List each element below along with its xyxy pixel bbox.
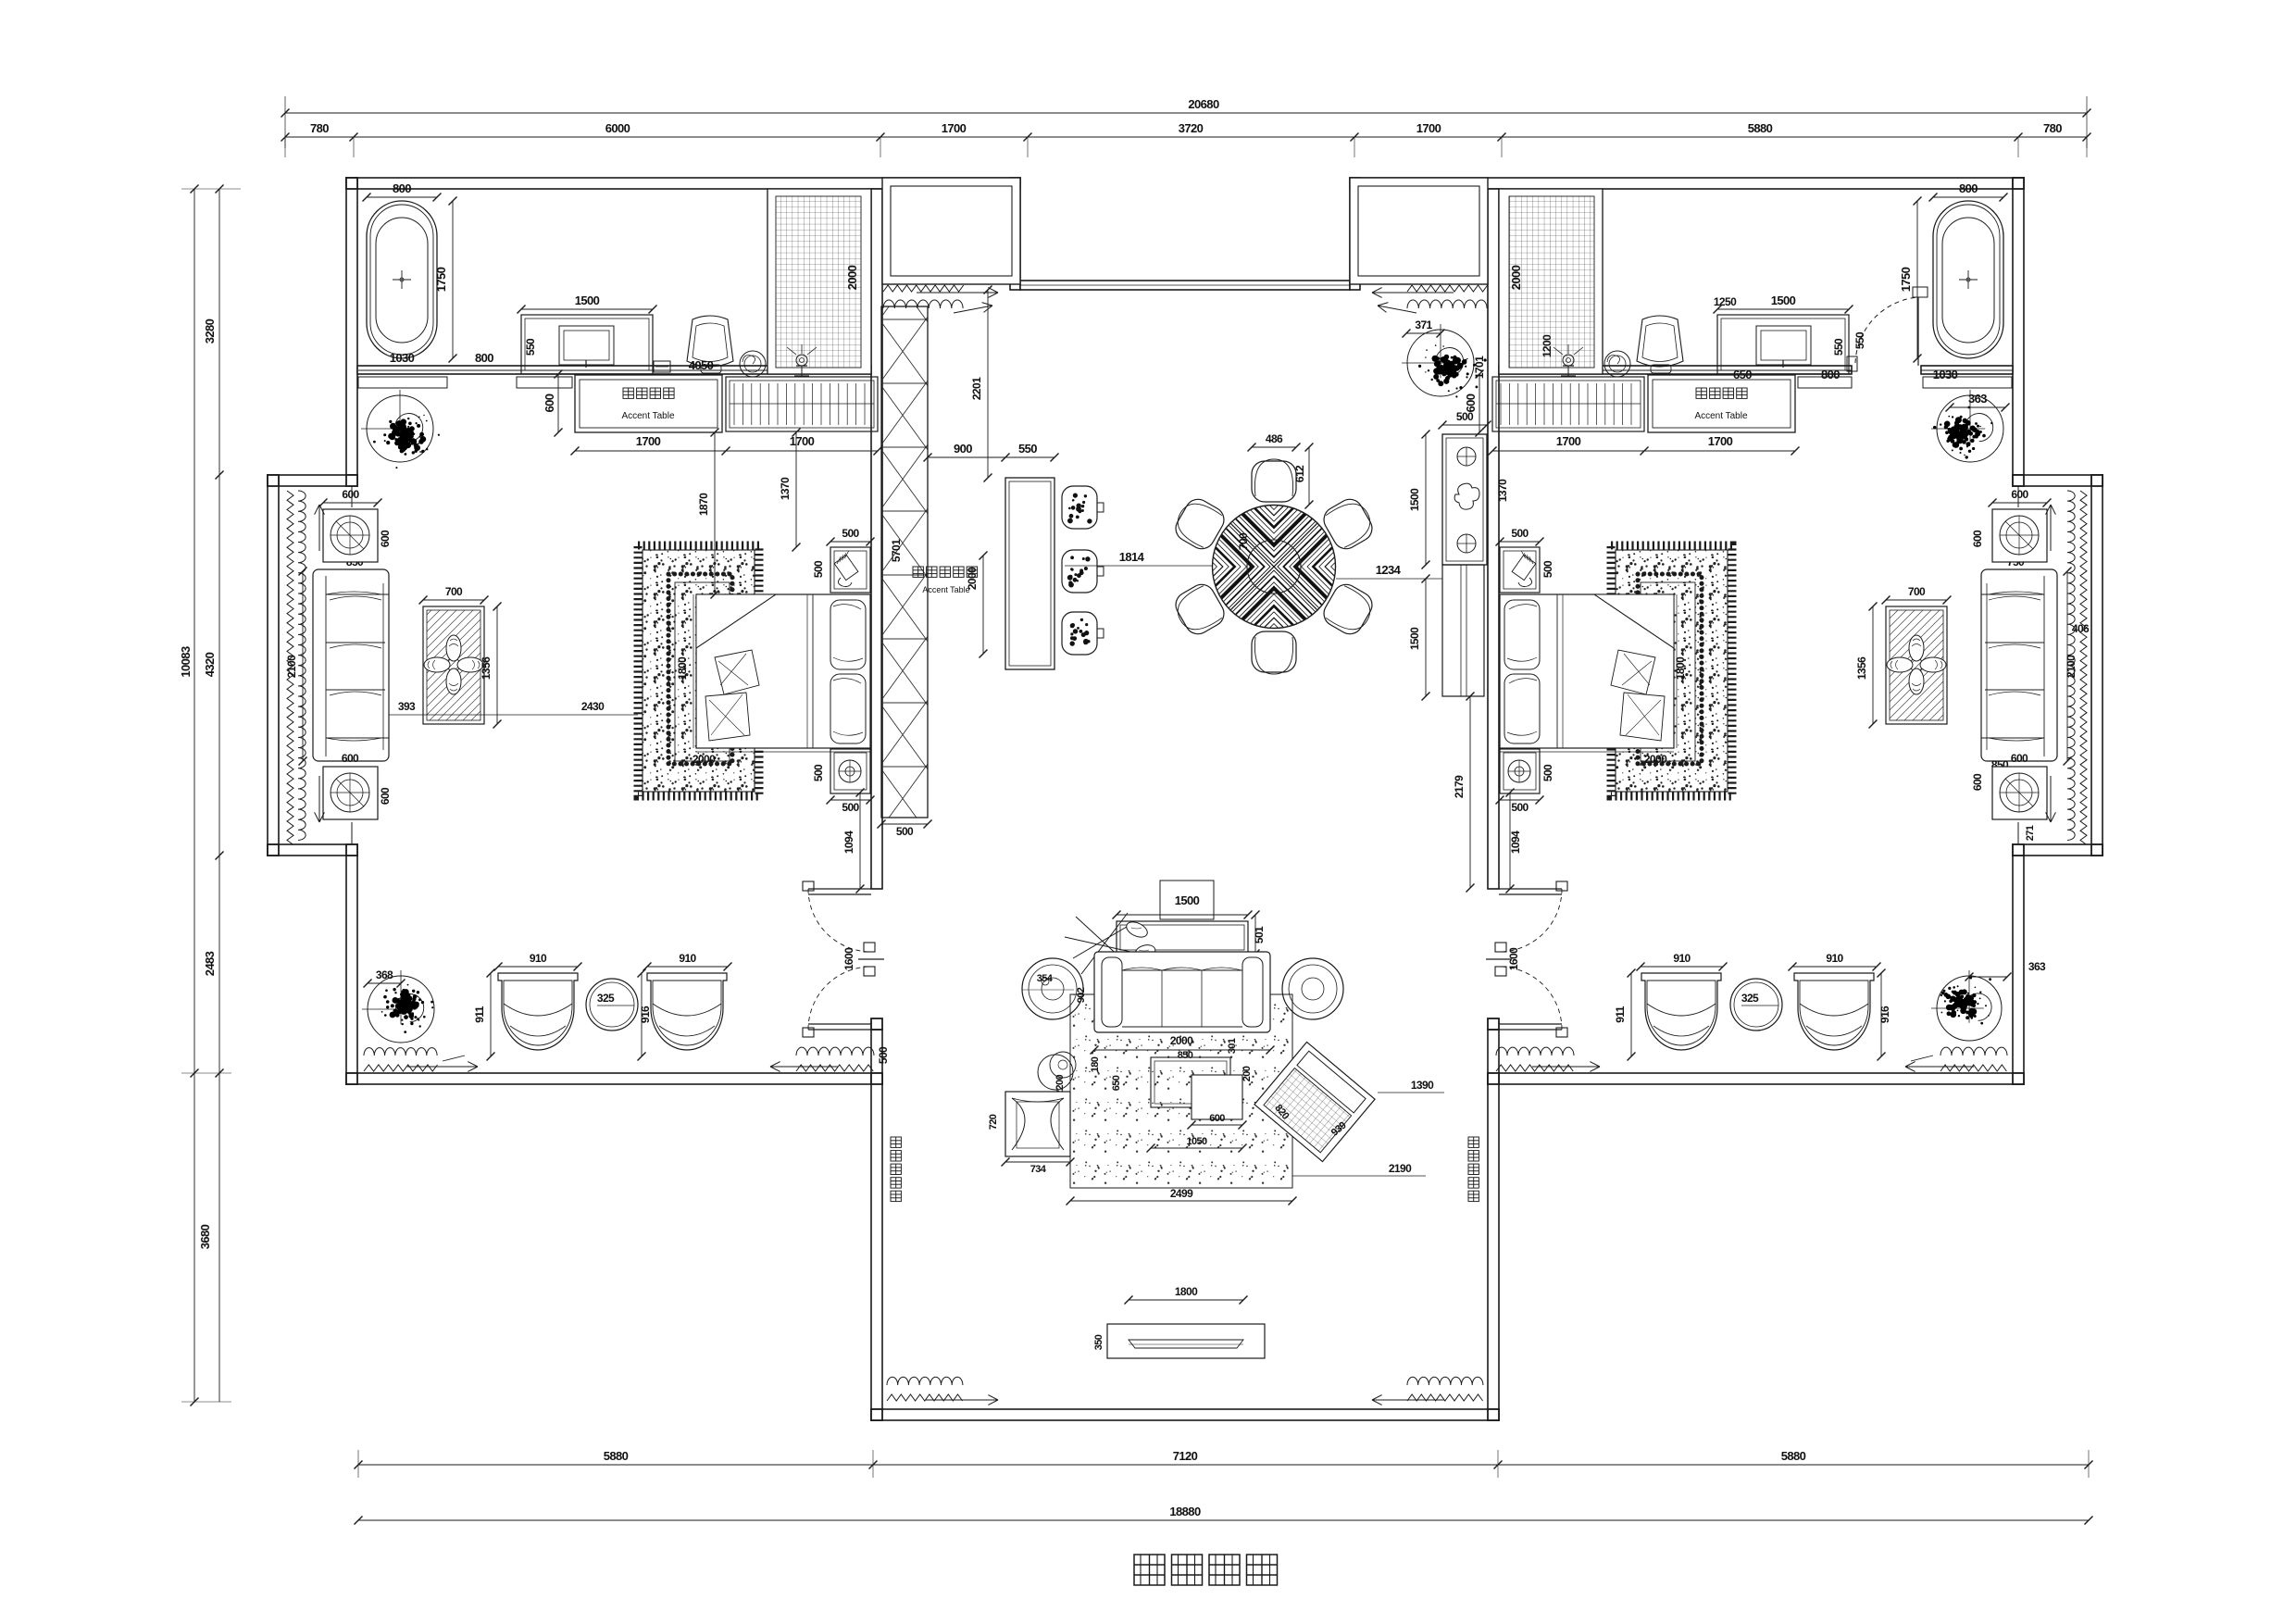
svg-text:1700: 1700 — [1416, 121, 1441, 135]
svg-text:1750: 1750 — [1899, 267, 1913, 292]
svg-text:1700: 1700 — [942, 121, 967, 135]
svg-text:2000: 2000 — [1170, 1034, 1193, 1047]
svg-text:2499: 2499 — [1170, 1187, 1193, 1200]
svg-text:500: 500 — [1541, 764, 1554, 781]
svg-text:910: 910 — [530, 952, 547, 965]
svg-text:1870: 1870 — [697, 493, 710, 516]
svg-text:301: 301 — [1227, 1038, 1238, 1054]
svg-text:3680: 3680 — [198, 1224, 212, 1249]
svg-text:180: 180 — [1090, 1056, 1101, 1072]
svg-text:500: 500 — [896, 825, 914, 838]
svg-text:550: 550 — [524, 338, 537, 356]
svg-text:1500: 1500 — [1408, 627, 1421, 650]
svg-text:325: 325 — [1741, 992, 1759, 1005]
svg-text:500: 500 — [1456, 410, 1474, 423]
svg-text:911: 911 — [1614, 1006, 1627, 1022]
svg-text:600: 600 — [379, 530, 392, 547]
svg-text:700: 700 — [1908, 585, 1926, 598]
svg-text:600: 600 — [1971, 530, 1984, 547]
svg-text:910: 910 — [1673, 952, 1691, 965]
svg-text:2190: 2190 — [1389, 1162, 1412, 1175]
svg-text:600: 600 — [1209, 1113, 1225, 1124]
svg-text:700: 700 — [445, 585, 463, 598]
svg-text:500: 500 — [812, 560, 825, 578]
svg-text:363: 363 — [1968, 392, 1987, 406]
svg-text:1356: 1356 — [1855, 656, 1868, 680]
svg-text:900: 900 — [954, 442, 972, 456]
svg-text:4050: 4050 — [689, 358, 714, 372]
svg-text:2483: 2483 — [203, 951, 217, 976]
svg-text:Accent Table: Accent Table — [621, 411, 675, 421]
svg-text:650: 650 — [1111, 1075, 1122, 1091]
svg-text:1700: 1700 — [1556, 434, 1581, 448]
svg-text:1750: 1750 — [434, 267, 448, 292]
svg-text:1700: 1700 — [1708, 434, 1733, 448]
svg-text:600: 600 — [342, 752, 359, 765]
svg-text:2000: 2000 — [966, 567, 979, 590]
svg-text:3720: 3720 — [1179, 121, 1204, 135]
svg-text:780: 780 — [310, 121, 329, 135]
svg-text:800: 800 — [475, 351, 493, 365]
svg-text:850: 850 — [1178, 1050, 1193, 1061]
svg-text:734: 734 — [1030, 1164, 1047, 1175]
svg-text:1250: 1250 — [1714, 295, 1737, 308]
svg-text:5701: 5701 — [890, 539, 903, 562]
svg-text:500: 500 — [812, 764, 825, 781]
svg-text:18880: 18880 — [1169, 1505, 1201, 1518]
svg-text:200: 200 — [1242, 1066, 1253, 1081]
svg-text:1030: 1030 — [390, 351, 415, 365]
svg-text:2179: 2179 — [1453, 775, 1466, 798]
svg-text:500: 500 — [877, 1046, 890, 1064]
svg-text:600: 600 — [2011, 488, 2028, 501]
svg-text:1814: 1814 — [1119, 550, 1145, 564]
svg-text:2430: 2430 — [581, 700, 605, 713]
svg-text:1500: 1500 — [575, 294, 600, 307]
svg-text:1200: 1200 — [1541, 334, 1554, 357]
svg-text:700: 700 — [1237, 532, 1250, 550]
svg-text:10083: 10083 — [179, 646, 193, 678]
svg-text:2201: 2201 — [970, 377, 983, 400]
svg-text:1390: 1390 — [1411, 1079, 1434, 1092]
svg-text:916: 916 — [1878, 1006, 1891, 1023]
svg-text:Accent Table: Accent Table — [1694, 411, 1748, 421]
svg-text:1094: 1094 — [842, 831, 855, 854]
svg-text:500: 500 — [1511, 527, 1529, 540]
svg-text:1356: 1356 — [480, 656, 493, 680]
svg-text:550: 550 — [1018, 442, 1037, 456]
svg-text:500: 500 — [1541, 560, 1554, 578]
svg-text:20680: 20680 — [1188, 97, 1219, 111]
svg-text:2000: 2000 — [845, 265, 859, 290]
svg-text:1700: 1700 — [790, 434, 815, 448]
svg-text:501: 501 — [1253, 926, 1266, 943]
svg-text:1050: 1050 — [1186, 1136, 1207, 1147]
svg-text:368: 368 — [376, 968, 393, 981]
svg-text:1500: 1500 — [1175, 893, 1200, 907]
svg-text:1600: 1600 — [1507, 947, 1520, 970]
svg-text:910: 910 — [1826, 952, 1843, 965]
svg-text:720: 720 — [988, 1114, 999, 1130]
svg-text:600: 600 — [379, 787, 392, 805]
svg-text:271: 271 — [2025, 825, 2036, 841]
svg-text:5880: 5880 — [1781, 1449, 1806, 1463]
svg-text:5880: 5880 — [604, 1449, 629, 1463]
svg-text:371: 371 — [1415, 319, 1432, 331]
svg-text:2000: 2000 — [1644, 753, 1667, 766]
svg-text:1800: 1800 — [676, 656, 689, 680]
svg-text:550: 550 — [1832, 338, 1845, 356]
svg-text:Accent Table: Accent Table — [922, 585, 969, 594]
svg-text:1700: 1700 — [636, 434, 661, 448]
svg-text:550: 550 — [1853, 331, 1866, 349]
svg-text:1094: 1094 — [1509, 831, 1522, 854]
svg-text:1800: 1800 — [1674, 656, 1687, 680]
svg-text:350: 350 — [1093, 1334, 1104, 1350]
svg-text:486: 486 — [1266, 432, 1283, 445]
svg-text:1701: 1701 — [1473, 356, 1486, 379]
svg-text:6000: 6000 — [605, 121, 630, 135]
svg-text:1370: 1370 — [1496, 479, 1509, 502]
svg-text:911: 911 — [473, 1006, 486, 1022]
svg-text:500: 500 — [1511, 801, 1529, 814]
svg-text:1030: 1030 — [1933, 368, 1958, 381]
svg-text:1800: 1800 — [1175, 1285, 1198, 1298]
svg-text:600: 600 — [543, 394, 556, 412]
svg-text:1234: 1234 — [1376, 563, 1402, 577]
svg-text:600: 600 — [2011, 752, 2028, 765]
svg-text:910: 910 — [679, 952, 696, 965]
svg-text:354: 354 — [1037, 973, 1054, 984]
svg-text:363: 363 — [2028, 960, 2046, 973]
svg-text:1500: 1500 — [1771, 294, 1796, 307]
svg-text:780: 780 — [2043, 121, 2062, 135]
svg-text:1370: 1370 — [779, 477, 792, 500]
svg-text:5880: 5880 — [1748, 121, 1773, 135]
svg-text:1500: 1500 — [1408, 488, 1421, 511]
svg-text:325: 325 — [597, 992, 615, 1005]
svg-text:916: 916 — [639, 1006, 652, 1023]
svg-text:612: 612 — [1293, 465, 1306, 482]
svg-text:1600: 1600 — [842, 947, 855, 970]
svg-text:800: 800 — [393, 181, 411, 195]
svg-text:2000: 2000 — [693, 753, 716, 766]
svg-text:4320: 4320 — [203, 652, 217, 677]
svg-text:3280: 3280 — [203, 319, 217, 344]
svg-text:393: 393 — [398, 700, 416, 713]
svg-text:2000: 2000 — [1509, 265, 1523, 290]
svg-text:500: 500 — [842, 801, 859, 814]
svg-text:600: 600 — [342, 488, 359, 501]
svg-text:7120: 7120 — [1173, 1449, 1198, 1463]
svg-text:500: 500 — [842, 527, 859, 540]
svg-text:600: 600 — [1971, 773, 1984, 791]
svg-text:800: 800 — [1959, 181, 1978, 195]
